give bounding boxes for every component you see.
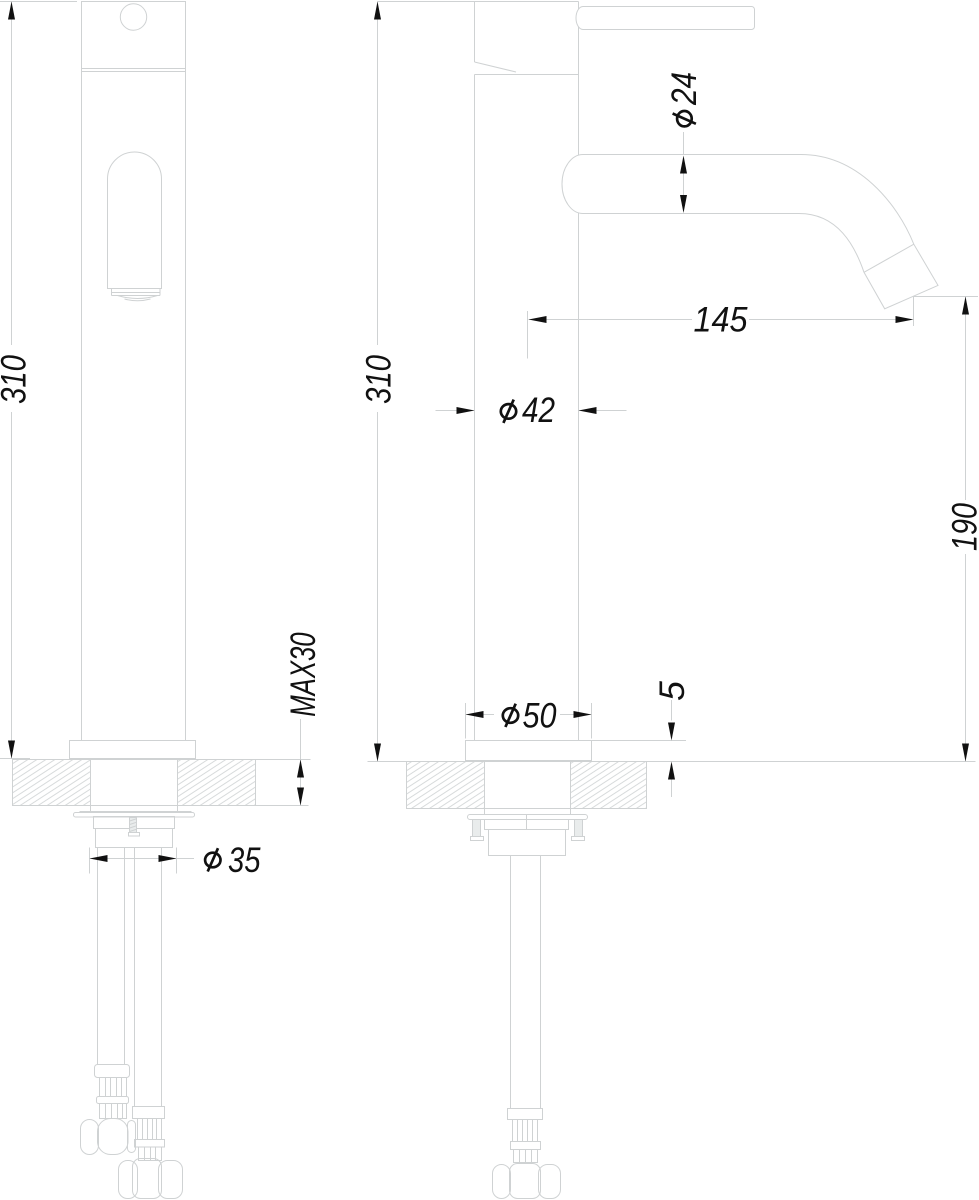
svg-text:42: 42	[522, 390, 555, 430]
svg-text:310: 310	[0, 355, 34, 404]
svg-text:24: 24	[664, 72, 704, 106]
svg-text:5: 5	[652, 681, 692, 701]
svg-text:190: 190	[945, 503, 979, 551]
svg-text:35: 35	[228, 840, 261, 880]
svg-text:145: 145	[694, 300, 748, 340]
svg-text:MAX30: MAX30	[283, 632, 323, 717]
svg-text:310: 310	[359, 355, 399, 404]
svg-text:50: 50	[523, 696, 557, 736]
